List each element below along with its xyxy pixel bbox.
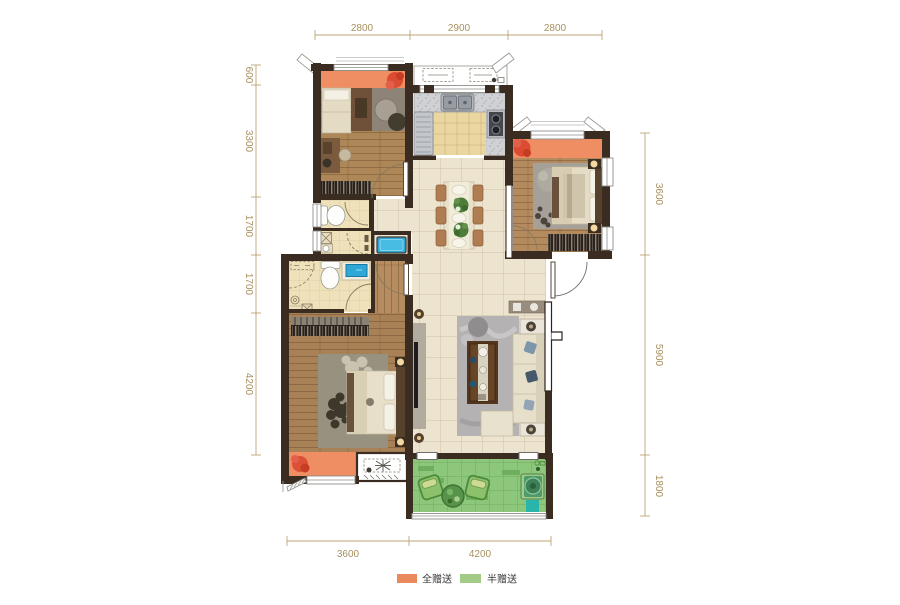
svg-text:3600: 3600 [337,549,360,560]
svg-text:1700: 1700 [243,273,254,296]
svg-text:半赠送: 半赠送 [487,573,517,586]
svg-text:5900: 5900 [653,344,664,367]
svg-text:3600: 3600 [653,183,664,206]
svg-text:1700: 1700 [243,215,254,238]
svg-text:2800: 2800 [351,23,374,34]
svg-text:3300: 3300 [243,130,254,153]
svg-text:4200: 4200 [469,549,492,560]
svg-text:2900: 2900 [448,23,471,34]
svg-text:600: 600 [243,67,254,84]
svg-text:全赠送: 全赠送 [422,573,452,586]
svg-text:1800: 1800 [653,475,664,498]
svg-text:4200: 4200 [243,373,254,396]
svg-text:2800: 2800 [544,23,567,34]
